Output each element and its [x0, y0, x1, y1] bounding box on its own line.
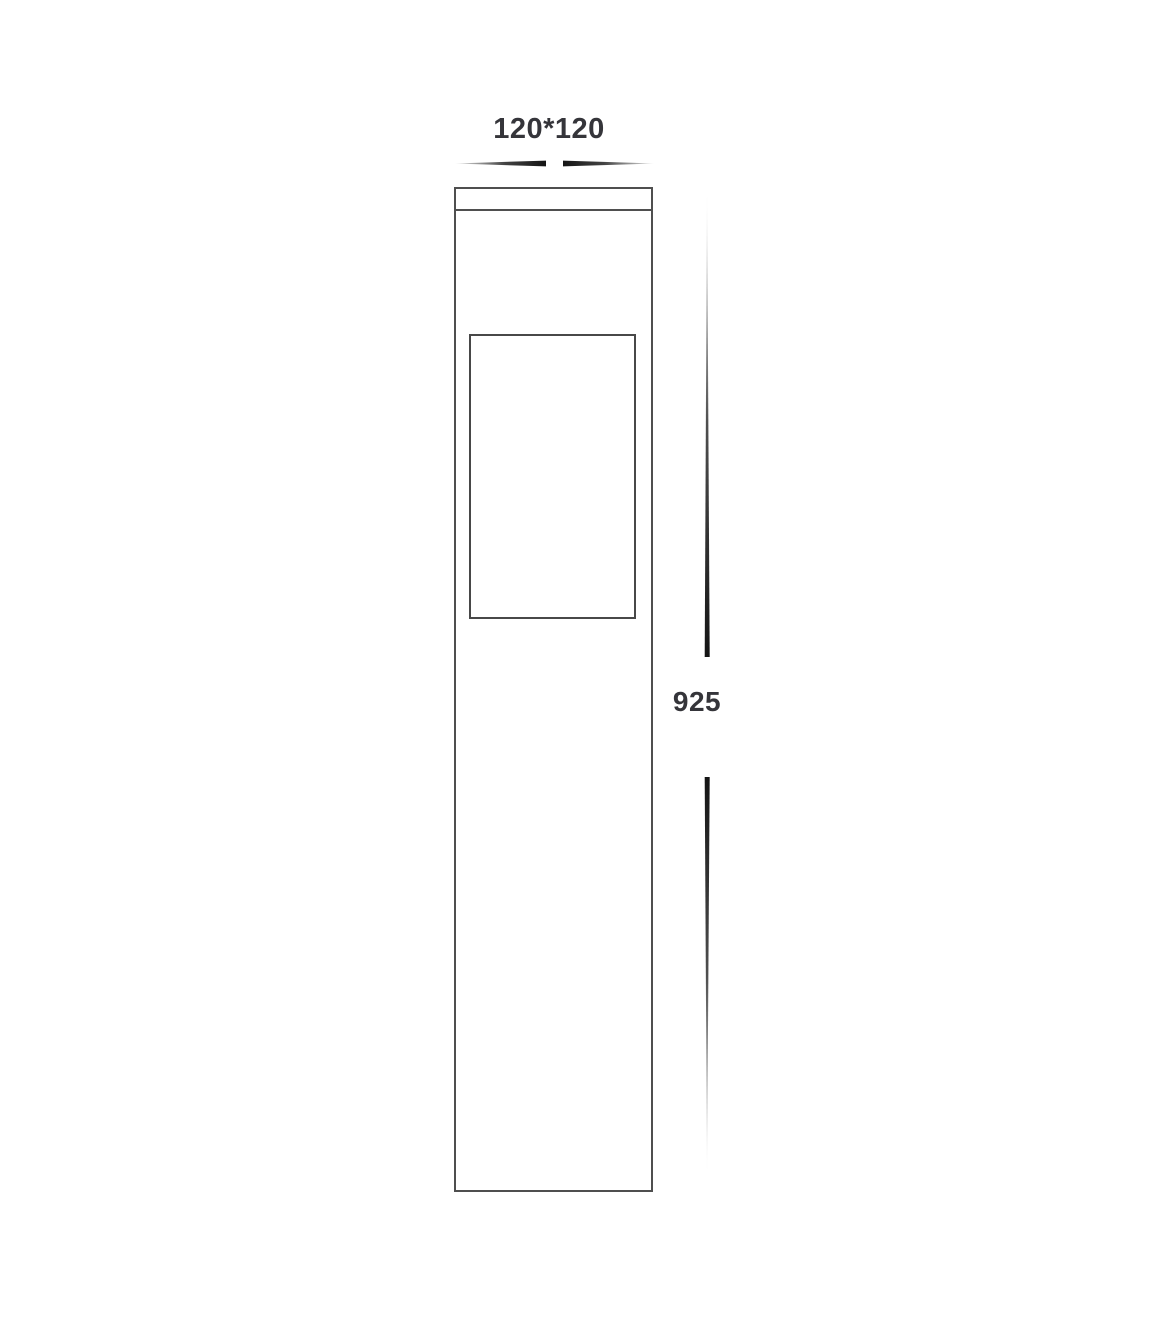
height-dimension-label: 925	[652, 688, 742, 716]
dimension-drawing: 120*120	[0, 0, 1172, 1329]
bollard-cap-line	[454, 209, 653, 211]
width-dimension-arrows	[455, 156, 654, 171]
width-arrow-left-icon	[455, 161, 546, 167]
height-arrow-upper-icon	[705, 189, 710, 657]
width-arrow-right-icon	[563, 161, 654, 167]
height-arrow-lower-icon	[705, 777, 710, 1176]
width-dimension-label: 120*120	[449, 115, 649, 144]
bollard-light-window-outline	[469, 334, 636, 619]
